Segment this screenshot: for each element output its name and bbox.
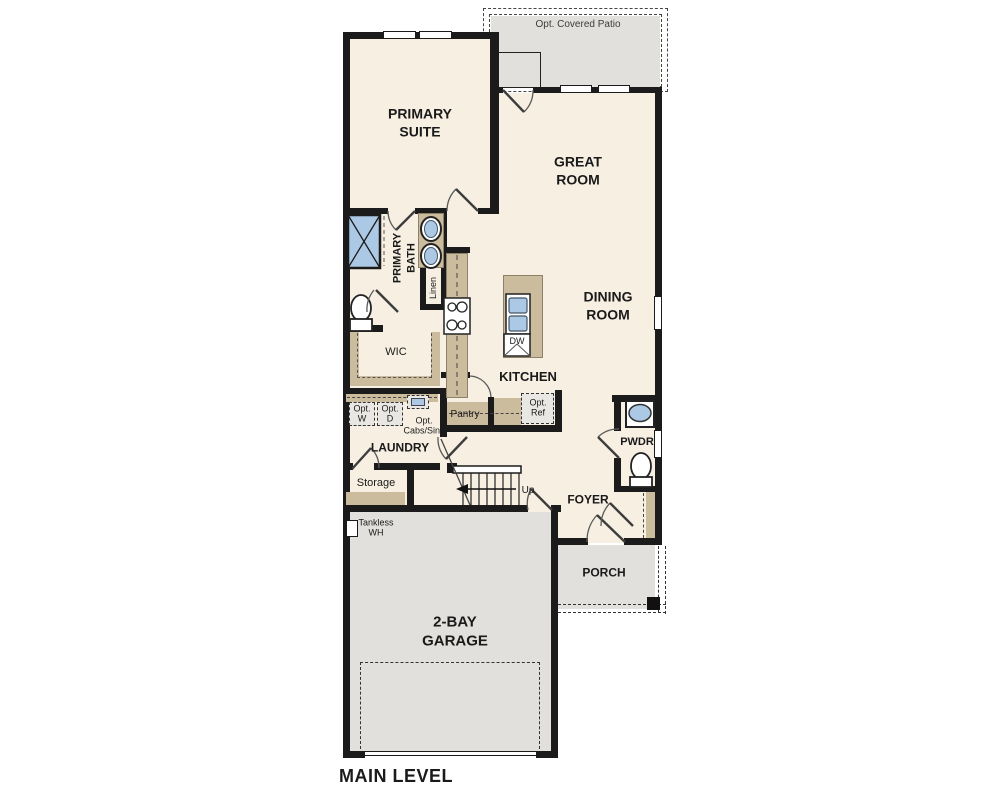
staircase <box>441 439 521 505</box>
kitchen-label: KITCHEN <box>499 369 557 385</box>
laundry-door-swing <box>438 437 467 459</box>
up-label: Up <box>522 485 535 498</box>
storage-label: Storage <box>357 477 396 491</box>
great-room-label: GREAT ROOM <box>554 154 602 189</box>
primary-bath-label: PRIMARY BATH <box>391 233 419 283</box>
plan-linework: DW <box>0 0 1000 800</box>
laundry-label: LAUNDRY <box>371 441 429 456</box>
foyer-label: FOYER <box>567 493 608 508</box>
pwdr-label: PWDR <box>620 436 654 450</box>
dw-label: DW <box>510 336 525 346</box>
garage-label: 2-BAY GARAGE <box>422 613 488 651</box>
primary-suite-label: PRIMARY SUITE <box>388 106 452 141</box>
pwdr-door-swing <box>598 429 619 458</box>
floor-plan: Opt. Covered Patio <box>0 0 1000 800</box>
pwdr-toilet-icon <box>630 453 652 487</box>
front-door-swing <box>587 515 625 542</box>
wic-label: WIC <box>385 346 406 360</box>
opt-w-label: Opt. W <box>353 404 370 425</box>
kitchen-passage-swing <box>470 376 491 397</box>
primary-bath-door-swing <box>388 211 415 230</box>
vanity-sink-icon <box>421 217 441 268</box>
opt-d-label: Opt. D <box>381 404 398 425</box>
dishwasher-icon: DW <box>504 334 530 356</box>
dining-room-label: DINING ROOM <box>584 289 633 324</box>
opt-cabs-sink-label: Opt. Cabs/Sink <box>403 416 444 437</box>
opt-ref-label: Opt. Ref <box>529 398 546 419</box>
plan-title: MAIN LEVEL <box>339 766 453 787</box>
patio-door-swing <box>503 90 533 112</box>
range-icon <box>444 298 470 334</box>
pantry-label: Pantry <box>451 409 480 422</box>
island-sink-icon <box>506 294 530 334</box>
primary-suite-door-swing <box>447 189 478 211</box>
pwdr-sink-icon <box>626 401 654 427</box>
shower-icon <box>348 215 384 268</box>
linen-label: Linen <box>428 277 438 299</box>
tankless-wh-label: Tankless WH <box>358 518 393 539</box>
porch-label: PORCH <box>582 566 625 581</box>
